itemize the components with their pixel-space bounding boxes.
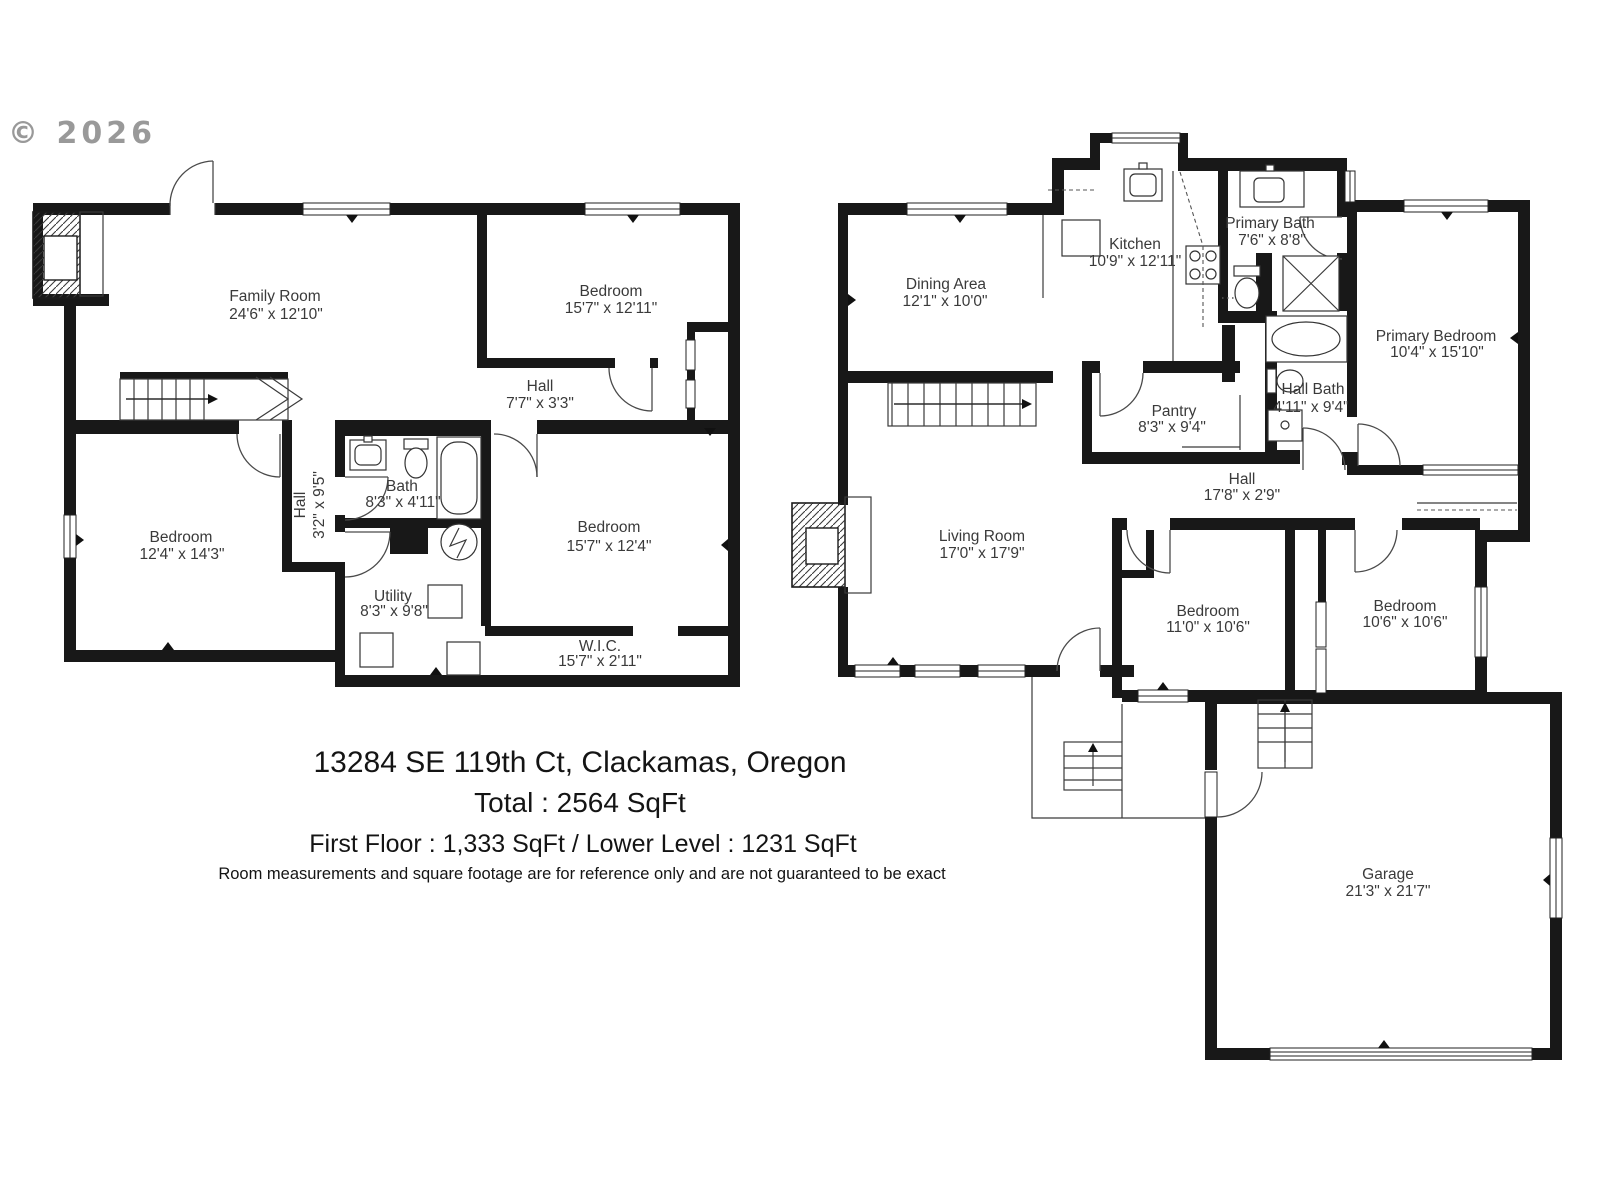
room-name: Hall Bath <box>1282 381 1345 398</box>
lower-level-plan: Family Room 24'6" x 12'10" Bedroom 15'7"… <box>33 161 740 687</box>
closet-slider <box>1316 649 1326 693</box>
toilet <box>1234 266 1260 308</box>
room-dims: 21'3" x 21'7" <box>1345 883 1430 900</box>
room-dims: 7'6" x 8'8" <box>1238 232 1306 249</box>
total-sqft-line: Total : 2564 SqFt <box>474 787 686 818</box>
room-hall-label: Hall 17'8" x 2'9" <box>1204 471 1280 504</box>
first-floor-plan: Dining Area 12'1" x 10'0" Kitchen 10'9" … <box>792 133 1562 1060</box>
room-dims: 8'3" x 9'8" <box>360 603 428 620</box>
room-dims: 8'3" x 9'4" <box>1138 419 1206 436</box>
room-name: Bedroom <box>150 529 213 546</box>
room-bath-label: Bath 8'3" x 4'11" <box>365 478 440 511</box>
room-primary-bedroom-label: Primary Bedroom 10'4" x 15'10" <box>1376 328 1497 361</box>
room-bedroom-left-label: Bedroom 12'4" x 14'3" <box>139 529 224 563</box>
room-hall-upper-label: Hall 7'7" x 3'3" <box>506 378 574 412</box>
room-dims: 15'7" x 12'11" <box>565 300 657 317</box>
room-name: Bedroom <box>1177 603 1240 620</box>
room-hall-bath-label: Hall Bath 4'11" x 9'4" <box>1273 381 1348 416</box>
room-primary-bath-label: Primary Bath 7'6" x 8'8" <box>1225 215 1315 249</box>
room-name: Family Room <box>229 288 320 305</box>
floor-sqft-line: First Floor : 1,333 SqFt / Lower Level :… <box>309 830 857 858</box>
room-name: Kitchen <box>1109 236 1161 253</box>
room-dims: 10'4" x 15'10" <box>1390 344 1484 361</box>
stairs-first-floor <box>888 383 1036 426</box>
shower <box>1283 256 1339 311</box>
appliance <box>447 642 480 675</box>
room-name: Dining Area <box>906 276 987 293</box>
room-dims: 11'0" x 10'6" <box>1166 619 1250 636</box>
room-dims: 17'8" x 2'9" <box>1204 487 1280 504</box>
room-bedroom-upper-label: Bedroom 15'7" x 12'11" <box>565 283 657 317</box>
room-name: Bedroom <box>1374 598 1437 615</box>
room-name: Pantry <box>1152 403 1197 420</box>
room-dims: 10'9" x 12'11" <box>1089 253 1181 270</box>
rear-entry-deck <box>1417 503 1517 510</box>
room-utility-label: Utility 8'3" x 9'8" <box>360 588 428 620</box>
room-name: Living Room <box>939 528 1025 545</box>
stairs-lower <box>120 377 302 420</box>
washer <box>428 585 462 618</box>
garage-door <box>1270 1048 1532 1060</box>
dryer <box>360 633 393 667</box>
fireplace-lower <box>33 212 103 298</box>
sink <box>350 436 386 470</box>
water-heater <box>441 524 477 560</box>
sink <box>1240 165 1304 207</box>
room-name: Hall <box>292 492 309 519</box>
room-pantry-label: Pantry 8'3" x 9'4" <box>1138 403 1206 436</box>
stove <box>1186 246 1220 284</box>
room-kitchen-label: Kitchen 10'9" x 12'11" <box>1089 236 1181 270</box>
floor-plan-sheet: Family Room 24'6" x 12'10" Bedroom 15'7"… <box>0 0 1600 1200</box>
room-dims: 10'6" x 10'6" <box>1362 614 1447 631</box>
room-name: Primary Bath <box>1225 215 1315 232</box>
kitchen-sink <box>1124 163 1162 201</box>
hall-bath-fixtures <box>1266 316 1347 441</box>
room-name: Bedroom <box>580 283 643 300</box>
room-name: Bath <box>386 478 418 495</box>
bathtub <box>437 437 481 519</box>
room-name: Hall <box>527 378 554 395</box>
room-dims: 12'1" x 10'0" <box>902 293 987 310</box>
room-dims: 8'3" x 4'11" <box>365 494 440 511</box>
floor-plan-canvas: Family Room 24'6" x 12'10" Bedroom 15'7"… <box>0 0 1600 1200</box>
garage-stairs <box>1258 700 1312 768</box>
room-name: Bedroom <box>578 519 641 536</box>
room-dims: 15'7" x 12'4" <box>566 538 651 555</box>
room-dims: 12'4" x 14'3" <box>139 546 224 563</box>
doors-lower <box>170 161 652 577</box>
room-wic-label: W.I.C. 15'7" x 2'11" <box>558 638 642 670</box>
room-garage-label: Garage 21'3" x 21'7" <box>1345 866 1430 900</box>
room-name: Hall <box>1229 471 1256 488</box>
room-dims: 15'7" x 2'11" <box>558 653 642 670</box>
room-family-room-label: Family Room 24'6" x 12'10" <box>229 288 323 323</box>
refrigerator <box>1062 220 1100 256</box>
bathtub <box>1266 316 1347 362</box>
room-name: Garage <box>1362 866 1414 883</box>
copyright-watermark: © 2026 <box>8 116 156 151</box>
address-line: 13284 SE 119th Ct, Clackamas, Oregon <box>313 746 846 779</box>
closet-slider <box>1316 602 1326 647</box>
room-dims: 24'6" x 12'10" <box>229 306 323 323</box>
room-name: Primary Bedroom <box>1376 328 1497 345</box>
room-dining-area-label: Dining Area 12'1" x 10'0" <box>902 276 987 310</box>
room-dims: 17'0" x 17'9" <box>939 545 1024 562</box>
room-bedroom-right-label: Bedroom 15'7" x 12'4" <box>566 519 651 555</box>
room-dims: 4'11" x 9'4" <box>1273 399 1348 416</box>
disclaimer-line: Room measurements and square footage are… <box>218 865 946 883</box>
fireplace-living-room <box>792 497 871 593</box>
room-dims: 3'2" x 9'5" <box>311 471 328 539</box>
room-hall-vertical-label: Hall 3'2" x 9'5" <box>292 471 328 539</box>
room-living-room-label: Living Room 17'0" x 17'9" <box>939 528 1025 562</box>
room-bedroom-two-label: Bedroom 10'6" x 10'6" <box>1362 598 1447 631</box>
room-bedroom-one-label: Bedroom 11'0" x 10'6" <box>1166 603 1250 636</box>
footer-text: 13284 SE 119th Ct, Clackamas, Oregon Tot… <box>218 746 946 883</box>
toilet <box>404 439 428 478</box>
room-dims: 7'7" x 3'3" <box>506 395 574 412</box>
